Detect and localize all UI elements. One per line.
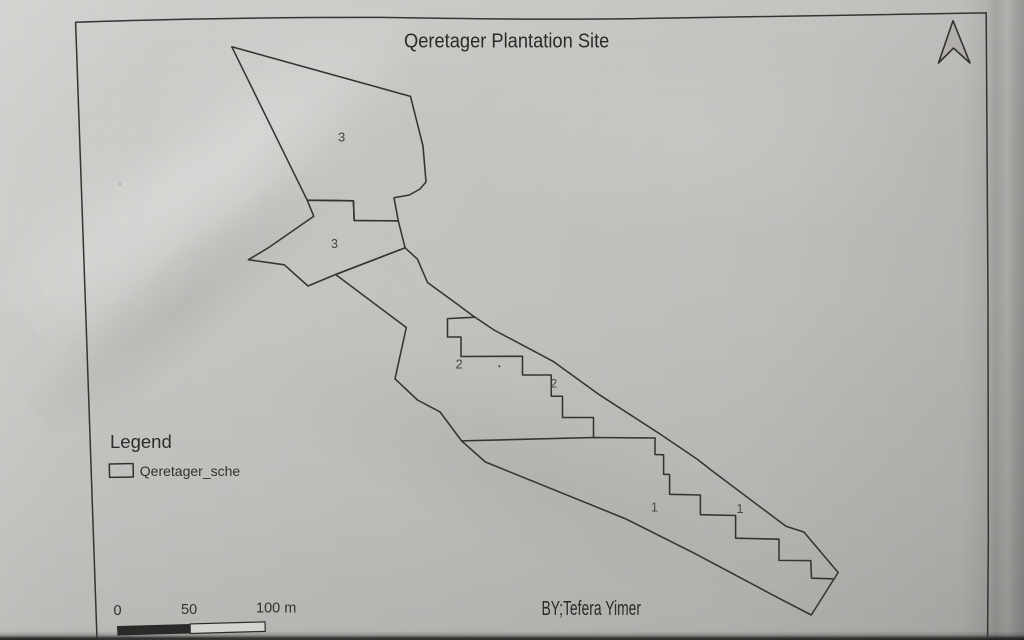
svg-text:3: 3	[338, 129, 345, 144]
svg-text:Qeretager Plantation Site: Qeretager Plantation Site	[404, 31, 609, 53]
svg-text:Qeretager_sche: Qeretager_sche	[140, 463, 241, 479]
svg-text:1: 1	[651, 501, 658, 515]
svg-text:2: 2	[456, 357, 463, 372]
svg-text:50: 50	[181, 602, 197, 618]
svg-text:100 m: 100 m	[256, 601, 296, 617]
svg-text:1: 1	[737, 502, 744, 516]
svg-text:0: 0	[114, 603, 122, 619]
svg-text:3: 3	[331, 237, 338, 251]
svg-text:2: 2	[551, 377, 558, 391]
svg-text:Legend: Legend	[110, 431, 172, 452]
svg-text:BY;Tefera Yimer: BY;Tefera Yimer	[542, 597, 642, 620]
